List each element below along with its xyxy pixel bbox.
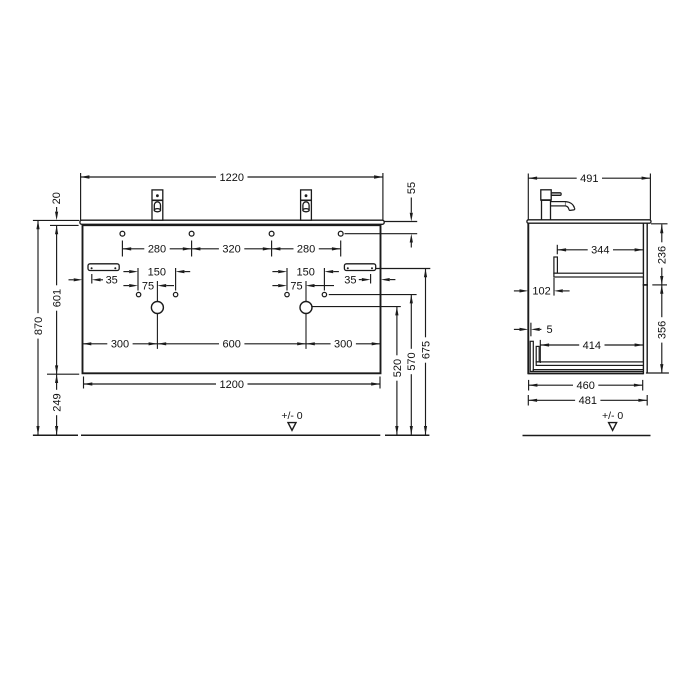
svg-text:102: 102 — [532, 286, 550, 298]
svg-text:20: 20 — [51, 192, 63, 204]
svg-text:344: 344 — [591, 245, 609, 257]
svg-text:150: 150 — [297, 266, 315, 278]
svg-text:75: 75 — [142, 281, 154, 293]
svg-text:570: 570 — [406, 352, 418, 370]
svg-text:+/- 0: +/- 0 — [602, 410, 623, 422]
svg-text:300: 300 — [334, 339, 352, 351]
svg-text:280: 280 — [148, 244, 166, 256]
svg-text:75: 75 — [290, 281, 302, 293]
svg-text:320: 320 — [222, 244, 240, 256]
svg-text:601: 601 — [52, 289, 64, 307]
svg-text:35: 35 — [106, 275, 118, 287]
svg-text:280: 280 — [297, 244, 315, 256]
svg-text:460: 460 — [577, 380, 595, 392]
svg-text:600: 600 — [223, 339, 241, 351]
svg-text:414: 414 — [583, 340, 601, 352]
svg-text:1200: 1200 — [220, 379, 244, 391]
svg-text:481: 481 — [579, 395, 597, 407]
svg-text:249: 249 — [52, 393, 64, 411]
svg-text:35: 35 — [344, 275, 356, 287]
svg-text:520: 520 — [392, 359, 404, 377]
svg-text:491: 491 — [580, 173, 598, 185]
svg-text:356: 356 — [657, 321, 669, 339]
svg-text:150: 150 — [148, 266, 166, 278]
svg-text:236: 236 — [657, 246, 669, 264]
svg-text:675: 675 — [420, 341, 432, 359]
svg-text:870: 870 — [33, 317, 45, 335]
svg-text:300: 300 — [111, 339, 129, 351]
svg-text:1220: 1220 — [220, 172, 244, 184]
svg-text:55: 55 — [406, 182, 418, 194]
svg-text:+/- 0: +/- 0 — [281, 410, 302, 422]
svg-text:5: 5 — [546, 324, 552, 336]
